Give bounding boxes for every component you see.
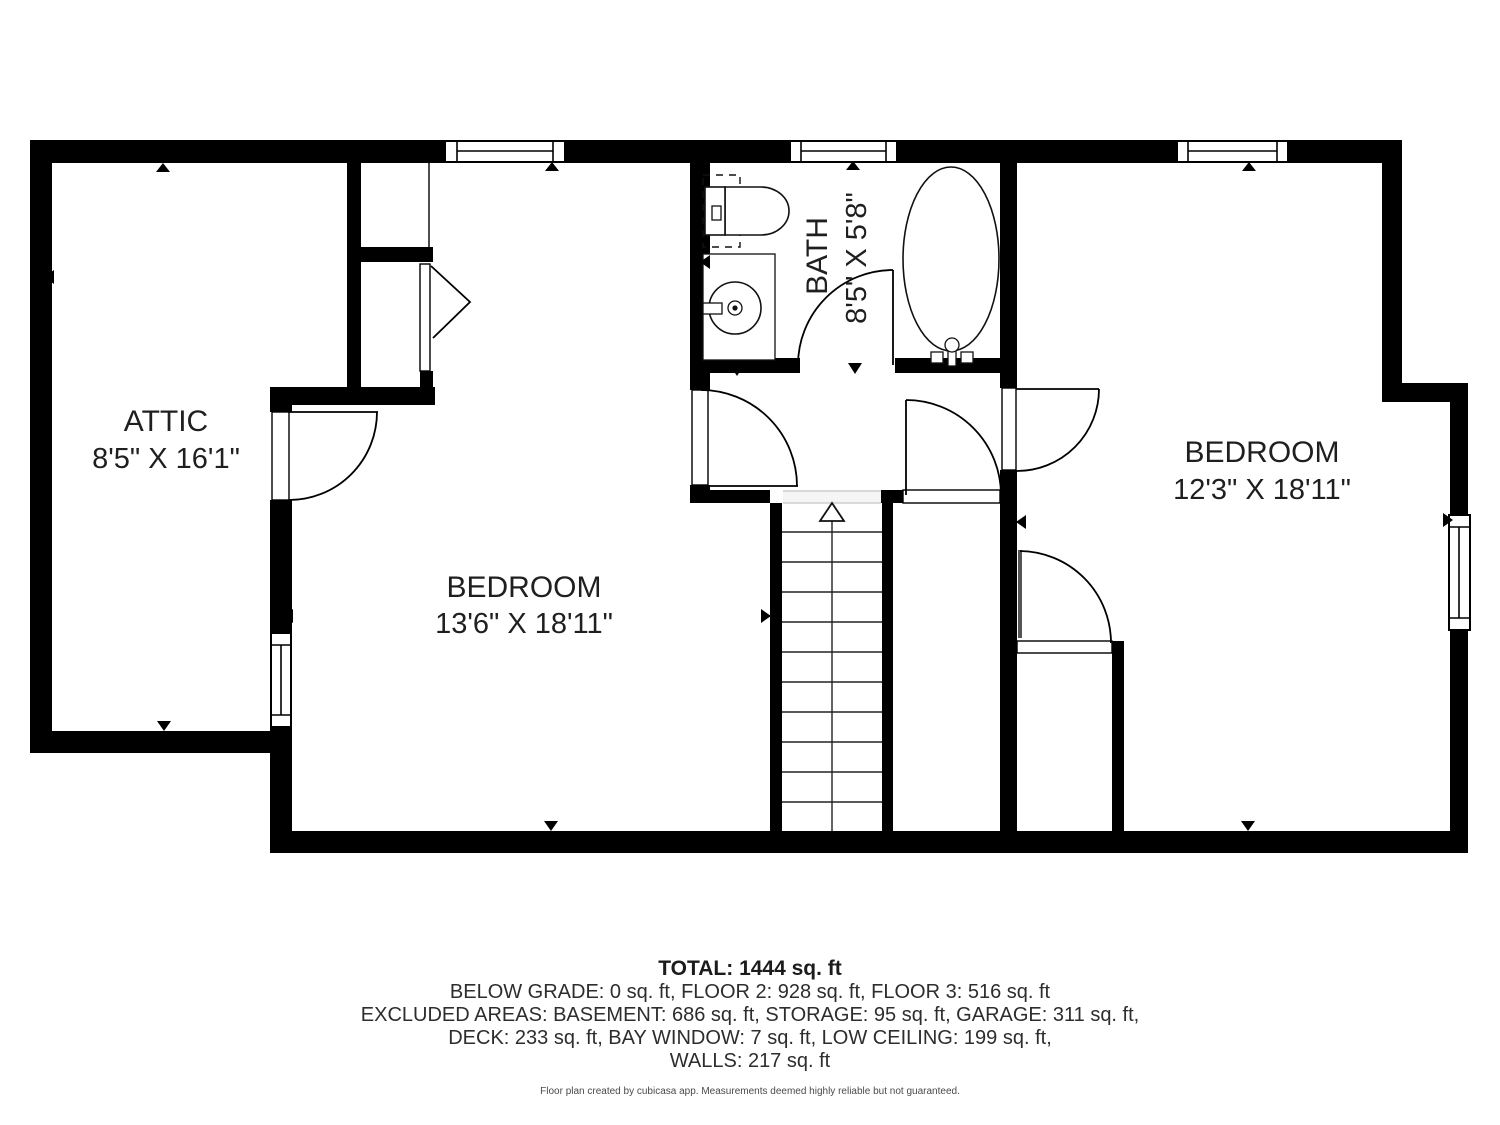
wall-stairwell-right: [882, 503, 893, 831]
wall-hall-bottom-right: [880, 490, 903, 503]
floor-plan-page: ATTIC 8'5" X 16'1" BEDROOM 13'6" X 18'11…: [0, 0, 1500, 1125]
wall-bath-right-upper: [1000, 163, 1017, 388]
summary-line-walls: WALLS: 217 sq. ft: [0, 1050, 1500, 1073]
bedroom-right-dimensions: 12'3" X 18'11": [1173, 474, 1351, 506]
wall-stairwell-left: [770, 503, 782, 831]
bath-label: BATH: [801, 217, 834, 295]
bathtub: [903, 167, 999, 366]
wall-attic-jog: [270, 387, 435, 405]
marker-down-icon: [1241, 821, 1255, 831]
wall-right-upper: [1382, 140, 1402, 402]
bedroom-right-door: [1002, 388, 1099, 471]
window-attic-wall: [271, 633, 291, 727]
wall-closet-divider: [361, 247, 433, 262]
bath-dimensions: 8'5" X 5'8": [841, 192, 873, 324]
window-bedroom-right-side: [1449, 515, 1470, 630]
staircase: [782, 490, 882, 831]
closet-right-door: [1017, 550, 1112, 653]
toilet: [703, 175, 789, 247]
window-bath-top: [790, 141, 897, 162]
wall-bath-right-lower: [1000, 470, 1017, 833]
wall-left: [30, 140, 52, 753]
marker-up-icon: [1242, 162, 1256, 171]
marker-down-icon: [157, 721, 171, 731]
marker-left-icon: [1016, 515, 1026, 529]
summary-line-excluded: EXCLUDED AREAS: BASEMENT: 686 sq. ft, ST…: [0, 1004, 1500, 1027]
closet-folding-door: [420, 264, 470, 371]
marker-down-icon: [848, 363, 862, 374]
disclaimer: Floor plan created by cubicasa app. Meas…: [0, 1086, 1500, 1097]
stair-direction-arrow-icon: [820, 503, 844, 521]
summary-line-deck: DECK: 233 sq. ft, BAY WINDOW: 7 sq. ft, …: [0, 1027, 1500, 1050]
summary-line-floors: BELOW GRADE: 0 sq. ft, FLOOR 2: 928 sq. …: [0, 981, 1500, 1004]
wall-attic-bottom: [30, 731, 292, 753]
window-bedroom-left-top: [445, 141, 565, 162]
bedroom-left-door: [692, 390, 798, 486]
wall-closet2-right: [1112, 641, 1124, 831]
window-bedroom-right-top: [1177, 141, 1288, 162]
attic-dimensions: 8'5" X 16'1": [92, 443, 240, 475]
bedroom-left-label: BEDROOM: [446, 571, 601, 604]
marker-down-icon: [544, 821, 558, 831]
storage-door: [903, 400, 1001, 503]
total-area: TOTAL: 1444 sq. ft: [0, 956, 1500, 981]
floor-plan-drawing: ATTIC 8'5" X 16'1" BEDROOM 13'6" X 18'11…: [0, 0, 1500, 950]
attic-door: [272, 412, 378, 500]
attic-label: ATTIC: [124, 405, 208, 438]
wall-attic-right-1: [270, 403, 292, 412]
bedroom-left-dimensions: 13'6" X 18'11": [435, 608, 613, 640]
wall-hall-bottom-left: [690, 490, 770, 503]
wall-bottom: [270, 831, 1468, 853]
marker-up-icon: [156, 163, 170, 172]
marker-up-icon: [545, 162, 559, 171]
wall-closet-left: [347, 163, 361, 395]
area-summary: TOTAL: 1444 sq. ft BELOW GRADE: 0 sq. ft…: [0, 956, 1500, 1073]
bath-sink: [703, 254, 775, 360]
bedroom-right-label: BEDROOM: [1184, 436, 1339, 469]
marker-right-icon: [761, 609, 771, 623]
stair-landing: [783, 490, 881, 503]
